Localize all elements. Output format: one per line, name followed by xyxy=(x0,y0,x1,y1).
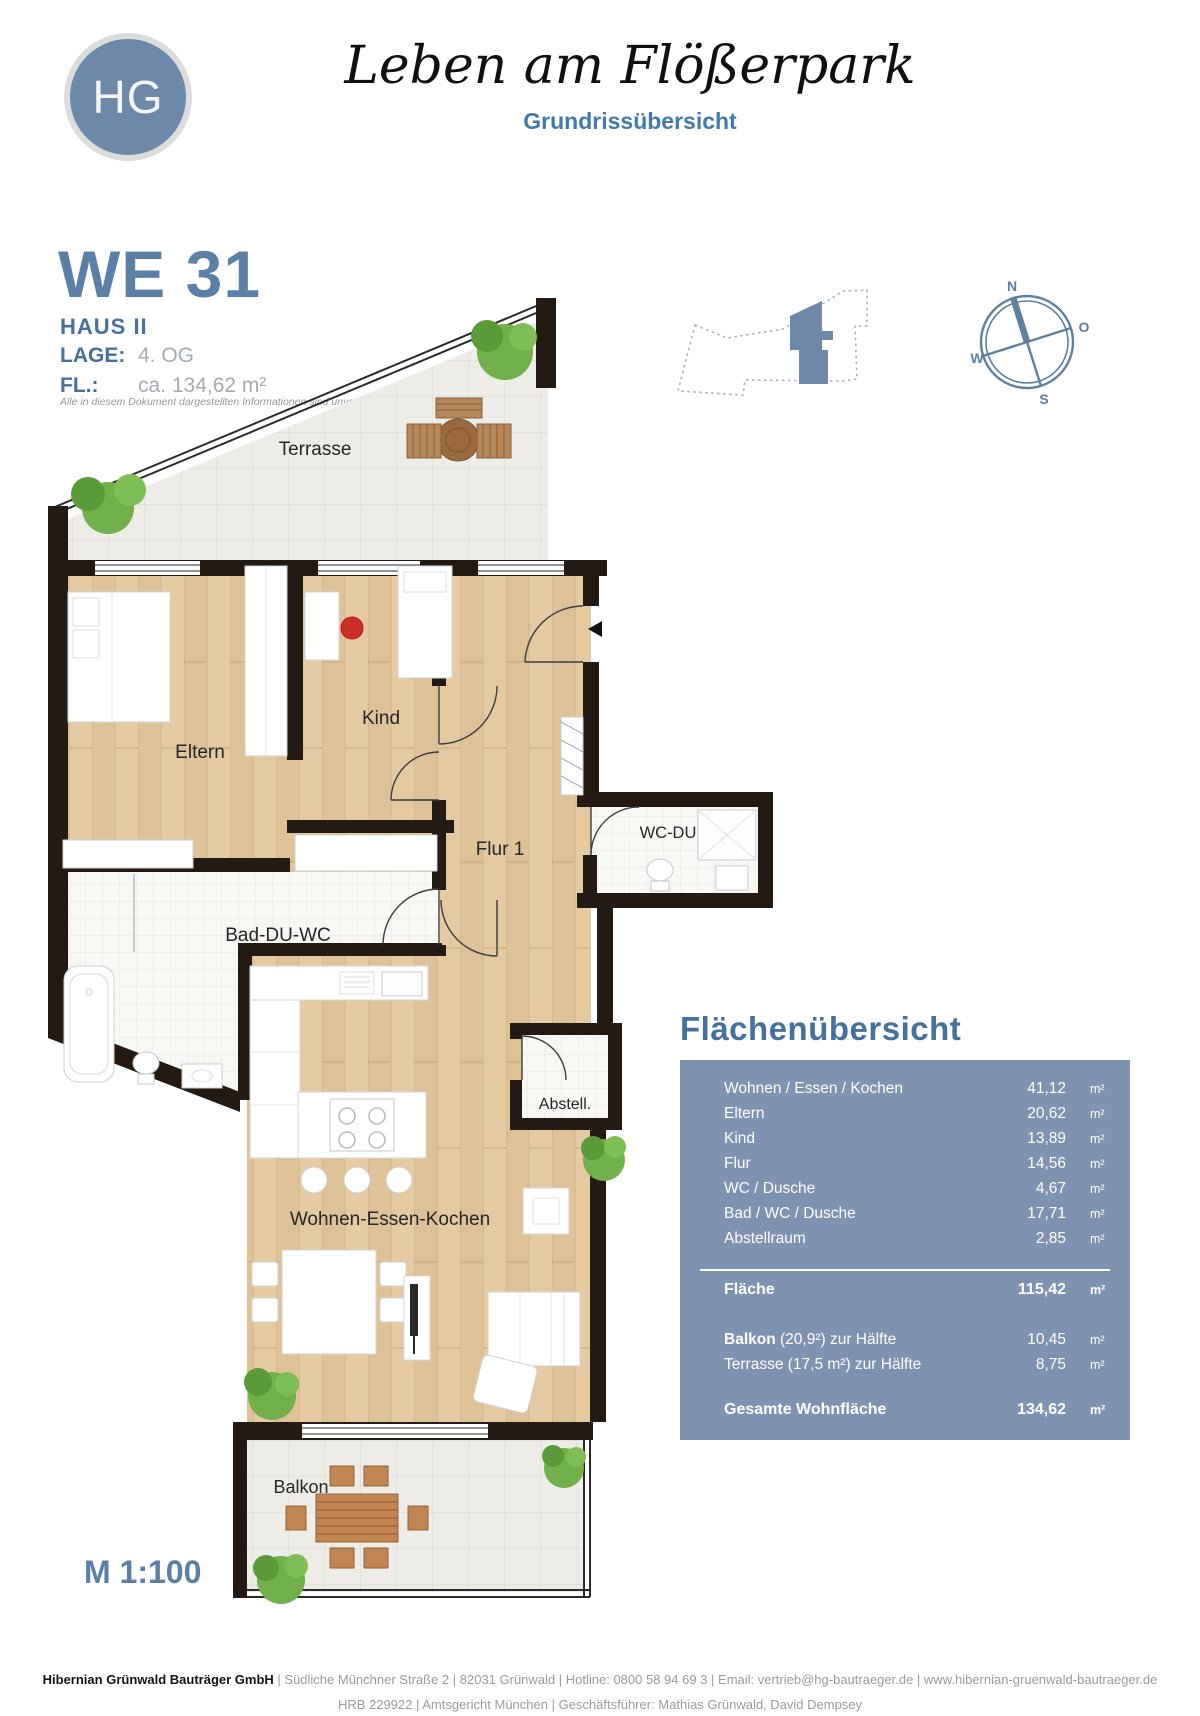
row-value: 41,12 xyxy=(994,1080,1066,1098)
compass-n: N xyxy=(1007,278,1017,294)
row-unit: m² xyxy=(1066,1207,1110,1221)
half-value: 8,75 xyxy=(994,1356,1066,1374)
table-row: Wohnen / Essen / Kochen 41,12 m² xyxy=(724,1080,1110,1105)
footer-company: Hibernian Grünwald Bauträger GmbH xyxy=(43,1672,274,1687)
compass-o: O xyxy=(1079,319,1090,335)
building-footprint xyxy=(790,301,833,384)
table-row: Bad / WC / Dusche 17,71 m² xyxy=(724,1205,1110,1230)
row-label: Bad / WC / Dusche xyxy=(724,1205,994,1223)
row-value: 4,67 xyxy=(994,1180,1066,1198)
compass-rose-icon: N O S W xyxy=(970,276,1092,408)
row-unit: m² xyxy=(1066,1107,1110,1121)
table-row: Flur 14,56 m² xyxy=(724,1155,1110,1180)
row-value: 20,62 xyxy=(994,1105,1066,1123)
room-label-abstell: Abstell. xyxy=(539,1096,591,1113)
room-label-kind: Kind xyxy=(362,708,400,729)
room-label-balkon: Balkon xyxy=(273,1477,328,1497)
row-unit: m² xyxy=(1066,1283,1110,1297)
table-row: Kind 13,89 m² xyxy=(724,1130,1110,1155)
project-title: Leben am Flößerpark xyxy=(60,36,1200,96)
room-label-eltern: Eltern xyxy=(175,742,225,763)
room-label-wcdu: WC-DU xyxy=(640,824,697,842)
total-row: Gesamte Wohnfläche 134,62 m² xyxy=(724,1401,1110,1429)
room-label-wohnen: Wohnen-Essen-Kochen xyxy=(290,1209,490,1230)
subtotal-value: 115,42 xyxy=(994,1281,1066,1299)
page-subtitle: Grundrissübersicht xyxy=(60,108,1200,135)
table-row: WC / Dusche 4,67 m² xyxy=(724,1180,1110,1205)
room-label-terrasse: Terrasse xyxy=(279,439,352,460)
subtotal-row: Fläche 115,42 m² xyxy=(724,1281,1110,1309)
row-label: Abstellraum xyxy=(724,1230,994,1248)
row-label: WC / Dusche xyxy=(724,1180,994,1198)
room-label-bad: Bad-DU-WC xyxy=(225,925,331,946)
total-label: Gesamte Wohnfläche xyxy=(724,1401,994,1419)
footer-line2: HRB 229922 | Amtsgericht München | Gesch… xyxy=(0,1697,1200,1712)
area-table-heading: Flächenübersicht xyxy=(680,1010,961,1048)
subtotal-label: Fläche xyxy=(724,1281,994,1299)
footer-contact: | Südliche Münchner Straße 2 | 82031 Grü… xyxy=(274,1672,1158,1687)
row-label: Wohnen / Essen / Kochen xyxy=(724,1080,994,1098)
row-label: Flur xyxy=(724,1155,994,1173)
table-row: Abstellraum 2,85 m² xyxy=(724,1230,1110,1255)
row-label: Eltern xyxy=(724,1105,994,1123)
row-unit: m² xyxy=(1066,1182,1110,1196)
half-row-balkon: Balkon (20,9²) zur Hälfte 10,45 m² xyxy=(724,1331,1110,1356)
row-label: Kind xyxy=(724,1130,994,1148)
compass-s: S xyxy=(1039,391,1048,407)
row-unit: m² xyxy=(1066,1403,1110,1417)
compass-w: W xyxy=(970,350,984,366)
brochure-page: HG Leben am Flößerpark Grundrissübersich… xyxy=(0,0,1200,1716)
table-divider xyxy=(700,1269,1110,1271)
table-row: Eltern 20,62 m² xyxy=(724,1105,1110,1130)
half-value: 10,45 xyxy=(994,1331,1066,1349)
half-label-rest: Terrasse (17,5 m²) zur Hälfte xyxy=(724,1356,921,1373)
half-label-rest: (20,9²) zur Hälfte xyxy=(776,1331,897,1348)
footer-line1: Hibernian Grünwald Bauträger GmbH | Südl… xyxy=(0,1672,1200,1687)
row-unit: m² xyxy=(1066,1157,1110,1171)
half-label-bold: Balkon xyxy=(724,1331,776,1348)
floor-plan: Terrasse Eltern Kind Flur 1 WC-DU Bad-DU… xyxy=(40,280,780,1625)
area-table: Wohnen / Essen / Kochen 41,12 m² Eltern … xyxy=(680,1060,1130,1440)
row-unit: m² xyxy=(1066,1132,1110,1146)
total-value: 134,62 xyxy=(994,1401,1066,1419)
row-value: 14,56 xyxy=(994,1155,1066,1173)
row-unit: m² xyxy=(1066,1333,1110,1347)
half-row-terrasse: Terrasse (17,5 m²) zur Hälfte 8,75 m² xyxy=(724,1356,1110,1381)
row-value: 13,89 xyxy=(994,1130,1066,1148)
row-unit: m² xyxy=(1066,1082,1110,1096)
room-label-flur1: Flur 1 xyxy=(476,839,525,860)
row-value: 17,71 xyxy=(994,1205,1066,1223)
scale-label: M 1:100 xyxy=(84,1554,201,1591)
row-unit: m² xyxy=(1066,1358,1110,1372)
row-unit: m² xyxy=(1066,1232,1110,1246)
row-value: 2,85 xyxy=(994,1230,1066,1248)
